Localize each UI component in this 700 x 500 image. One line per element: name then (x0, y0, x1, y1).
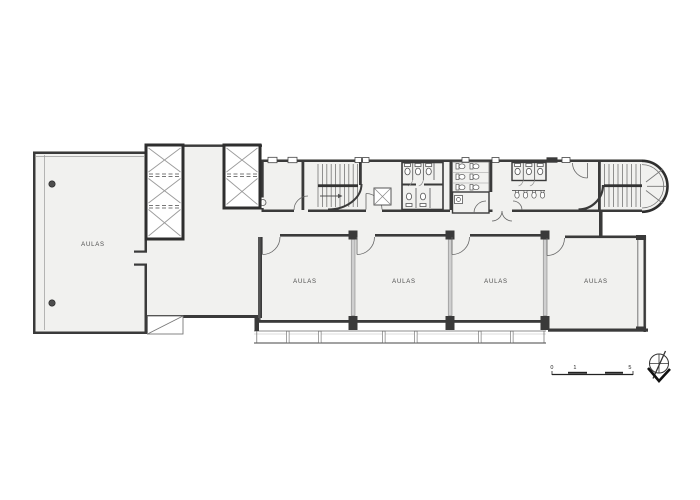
room-label: AULAS (81, 242, 105, 248)
elevator-shaft-b (224, 145, 260, 208)
room-label: AULAS (584, 279, 608, 285)
elevator-shaft-a (146, 145, 183, 239)
scale-bar: 0 1 5 (550, 365, 633, 375)
window-band (254, 331, 546, 343)
room-label: AULAS (484, 279, 508, 285)
floor-plan-drawing: AULAS AULAS AULAS AULAS AULAS 0 1 5 (0, 0, 700, 500)
north-arrow-icon (648, 351, 670, 381)
scale-tick-1: 1 (573, 365, 576, 371)
room-label: AULAS (293, 279, 317, 285)
door-opening (143, 252, 149, 265)
toilets (515, 164, 544, 175)
ramp (148, 316, 184, 334)
column-dot (49, 181, 55, 187)
sink (455, 196, 463, 204)
window-mullions (287, 331, 514, 343)
scale-tick-0: 0 (550, 365, 553, 371)
room-label: AULAS (392, 279, 416, 285)
scale-tick-5: 5 (628, 365, 631, 371)
floor-plan-page: AULAS AULAS AULAS AULAS AULAS 0 1 5 (0, 0, 700, 500)
column-dot (49, 300, 55, 306)
